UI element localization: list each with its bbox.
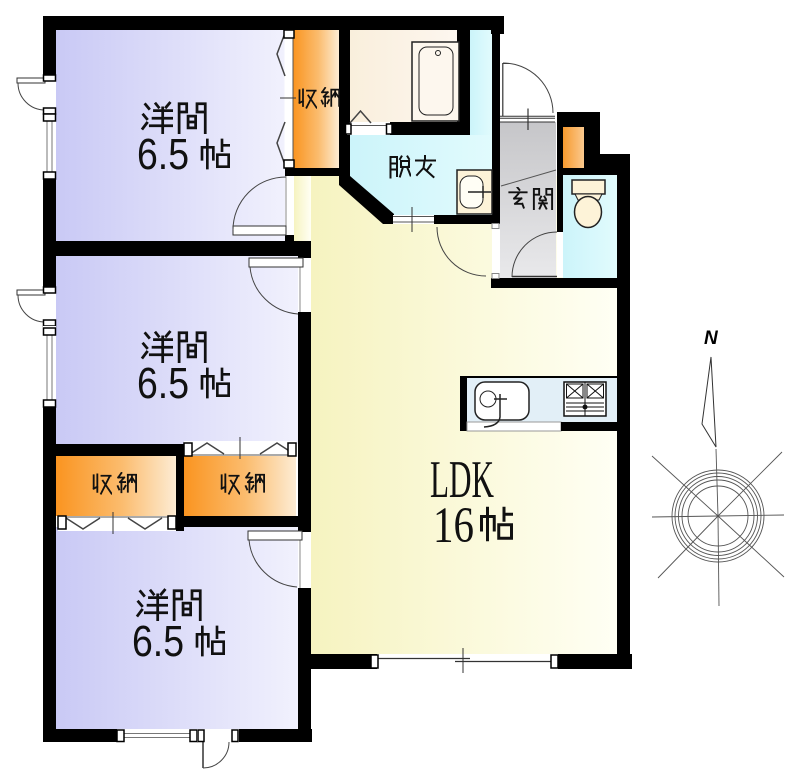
svg-text:6.5: 6.5	[137, 130, 189, 179]
svg-text:6.5: 6.5	[132, 617, 184, 666]
svg-text:16: 16	[433, 498, 474, 554]
svg-text:6.5: 6.5	[137, 359, 189, 408]
svg-text:N: N	[704, 328, 719, 349]
